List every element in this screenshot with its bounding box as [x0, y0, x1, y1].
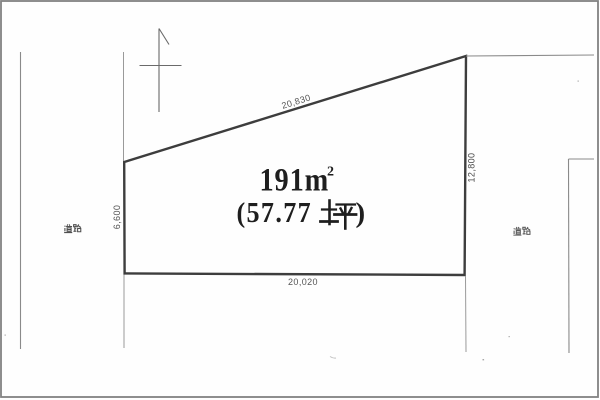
svg-text:): ) — [356, 197, 366, 229]
svg-text:(57.77: (57.77 — [237, 196, 312, 229]
svg-text:6,600: 6,600 — [112, 205, 122, 230]
svg-text:20,020: 20,020 — [288, 277, 318, 287]
svg-text:12,800: 12,800 — [467, 153, 477, 183]
svg-text:191m: 191m — [260, 162, 330, 198]
svg-text:2: 2 — [327, 165, 334, 180]
